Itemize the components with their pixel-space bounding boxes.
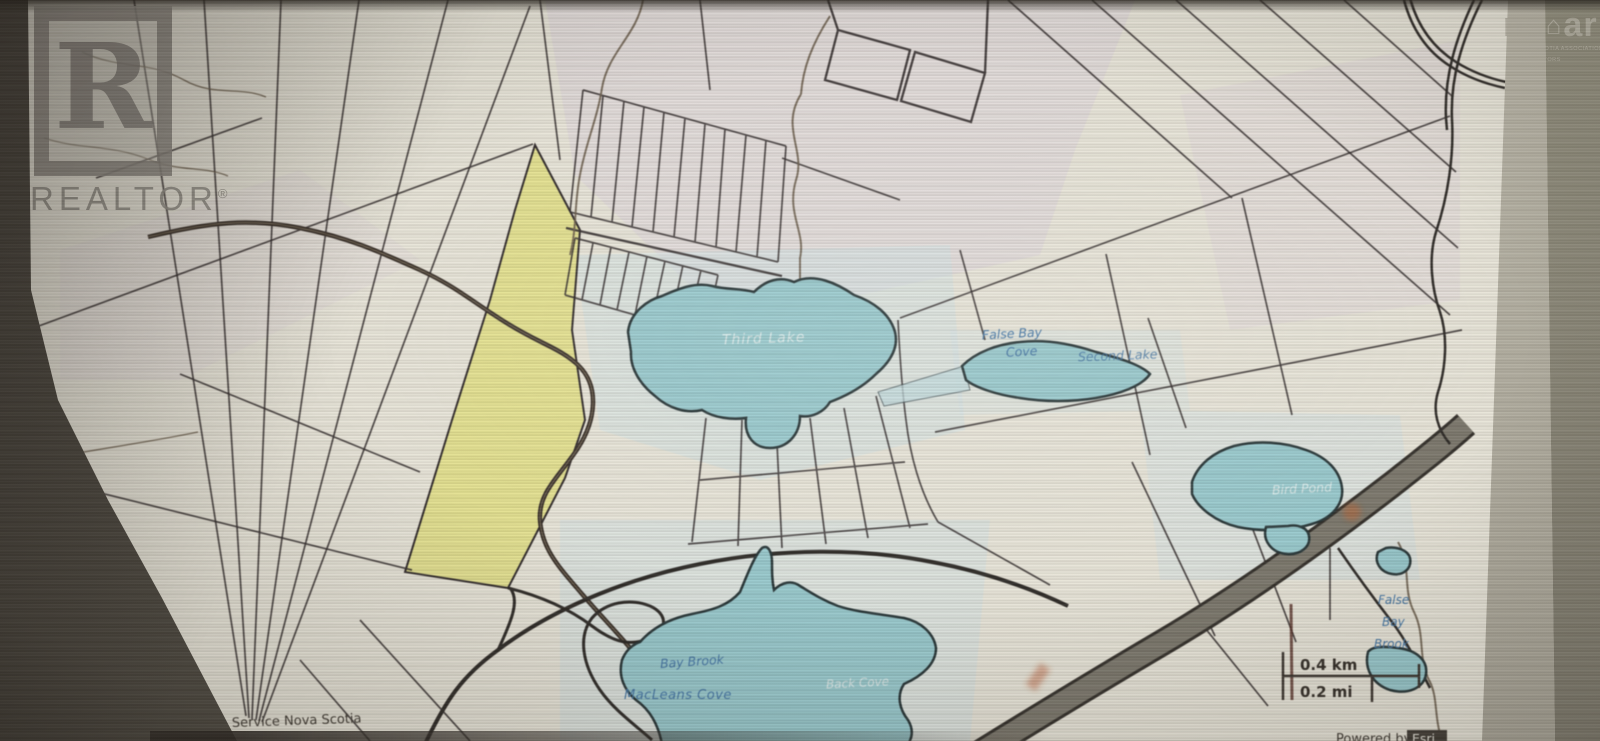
label-false-bay-cove: Cove (1005, 343, 1038, 360)
esri-label: Esri (1412, 731, 1435, 741)
nsar-ar: ar (1563, 8, 1597, 42)
realtor-logo-box: R (34, 6, 172, 176)
realtor-watermark: R REALTOR® (30, 6, 220, 218)
scale-mi: 0.2 mi (1300, 683, 1353, 701)
realtor-logo-r: R (54, 28, 152, 146)
scale-km: 0.4 km (1300, 656, 1357, 674)
house-icon: ⌂ (1546, 12, 1563, 38)
powered-by-text: Powered by (1336, 732, 1412, 741)
photo-of-parcel-map: Third Lake False Bay Cove Second Lake Bi… (0, 0, 1600, 741)
small-pond-2 (1377, 547, 1411, 574)
label-false-bay: False Bay (982, 324, 1043, 342)
nsar-ns: ns (1503, 8, 1545, 42)
label-macleans-cove: MacLeans Cove (624, 688, 732, 703)
label-false-bay-brook-1: False (1378, 593, 1409, 607)
registered-mark: ® (218, 186, 233, 201)
label-second-lake: Second Lake (1078, 347, 1158, 365)
nsar-watermark: ns⌂ar NOVA SCOTIA ASSOCIATION OF REALTOR… (1503, 8, 1600, 65)
label-third-lake: Third Lake (722, 329, 806, 348)
realtor-wordmark: REALTOR® (30, 180, 220, 218)
label-false-bay-brook-2: Bay (1382, 615, 1406, 629)
label-false-bay-brook-3: Brook (1374, 637, 1410, 651)
nsar-caption-2: OF REALTORS (1517, 56, 1600, 64)
parcel-map-canvas: Third Lake False Bay Cove Second Lake Bi… (0, 0, 1600, 741)
label-bird-pond: Bird Pond (1272, 479, 1333, 497)
nsar-caption-1: NOVA SCOTIA ASSOCIATION (1517, 45, 1600, 53)
